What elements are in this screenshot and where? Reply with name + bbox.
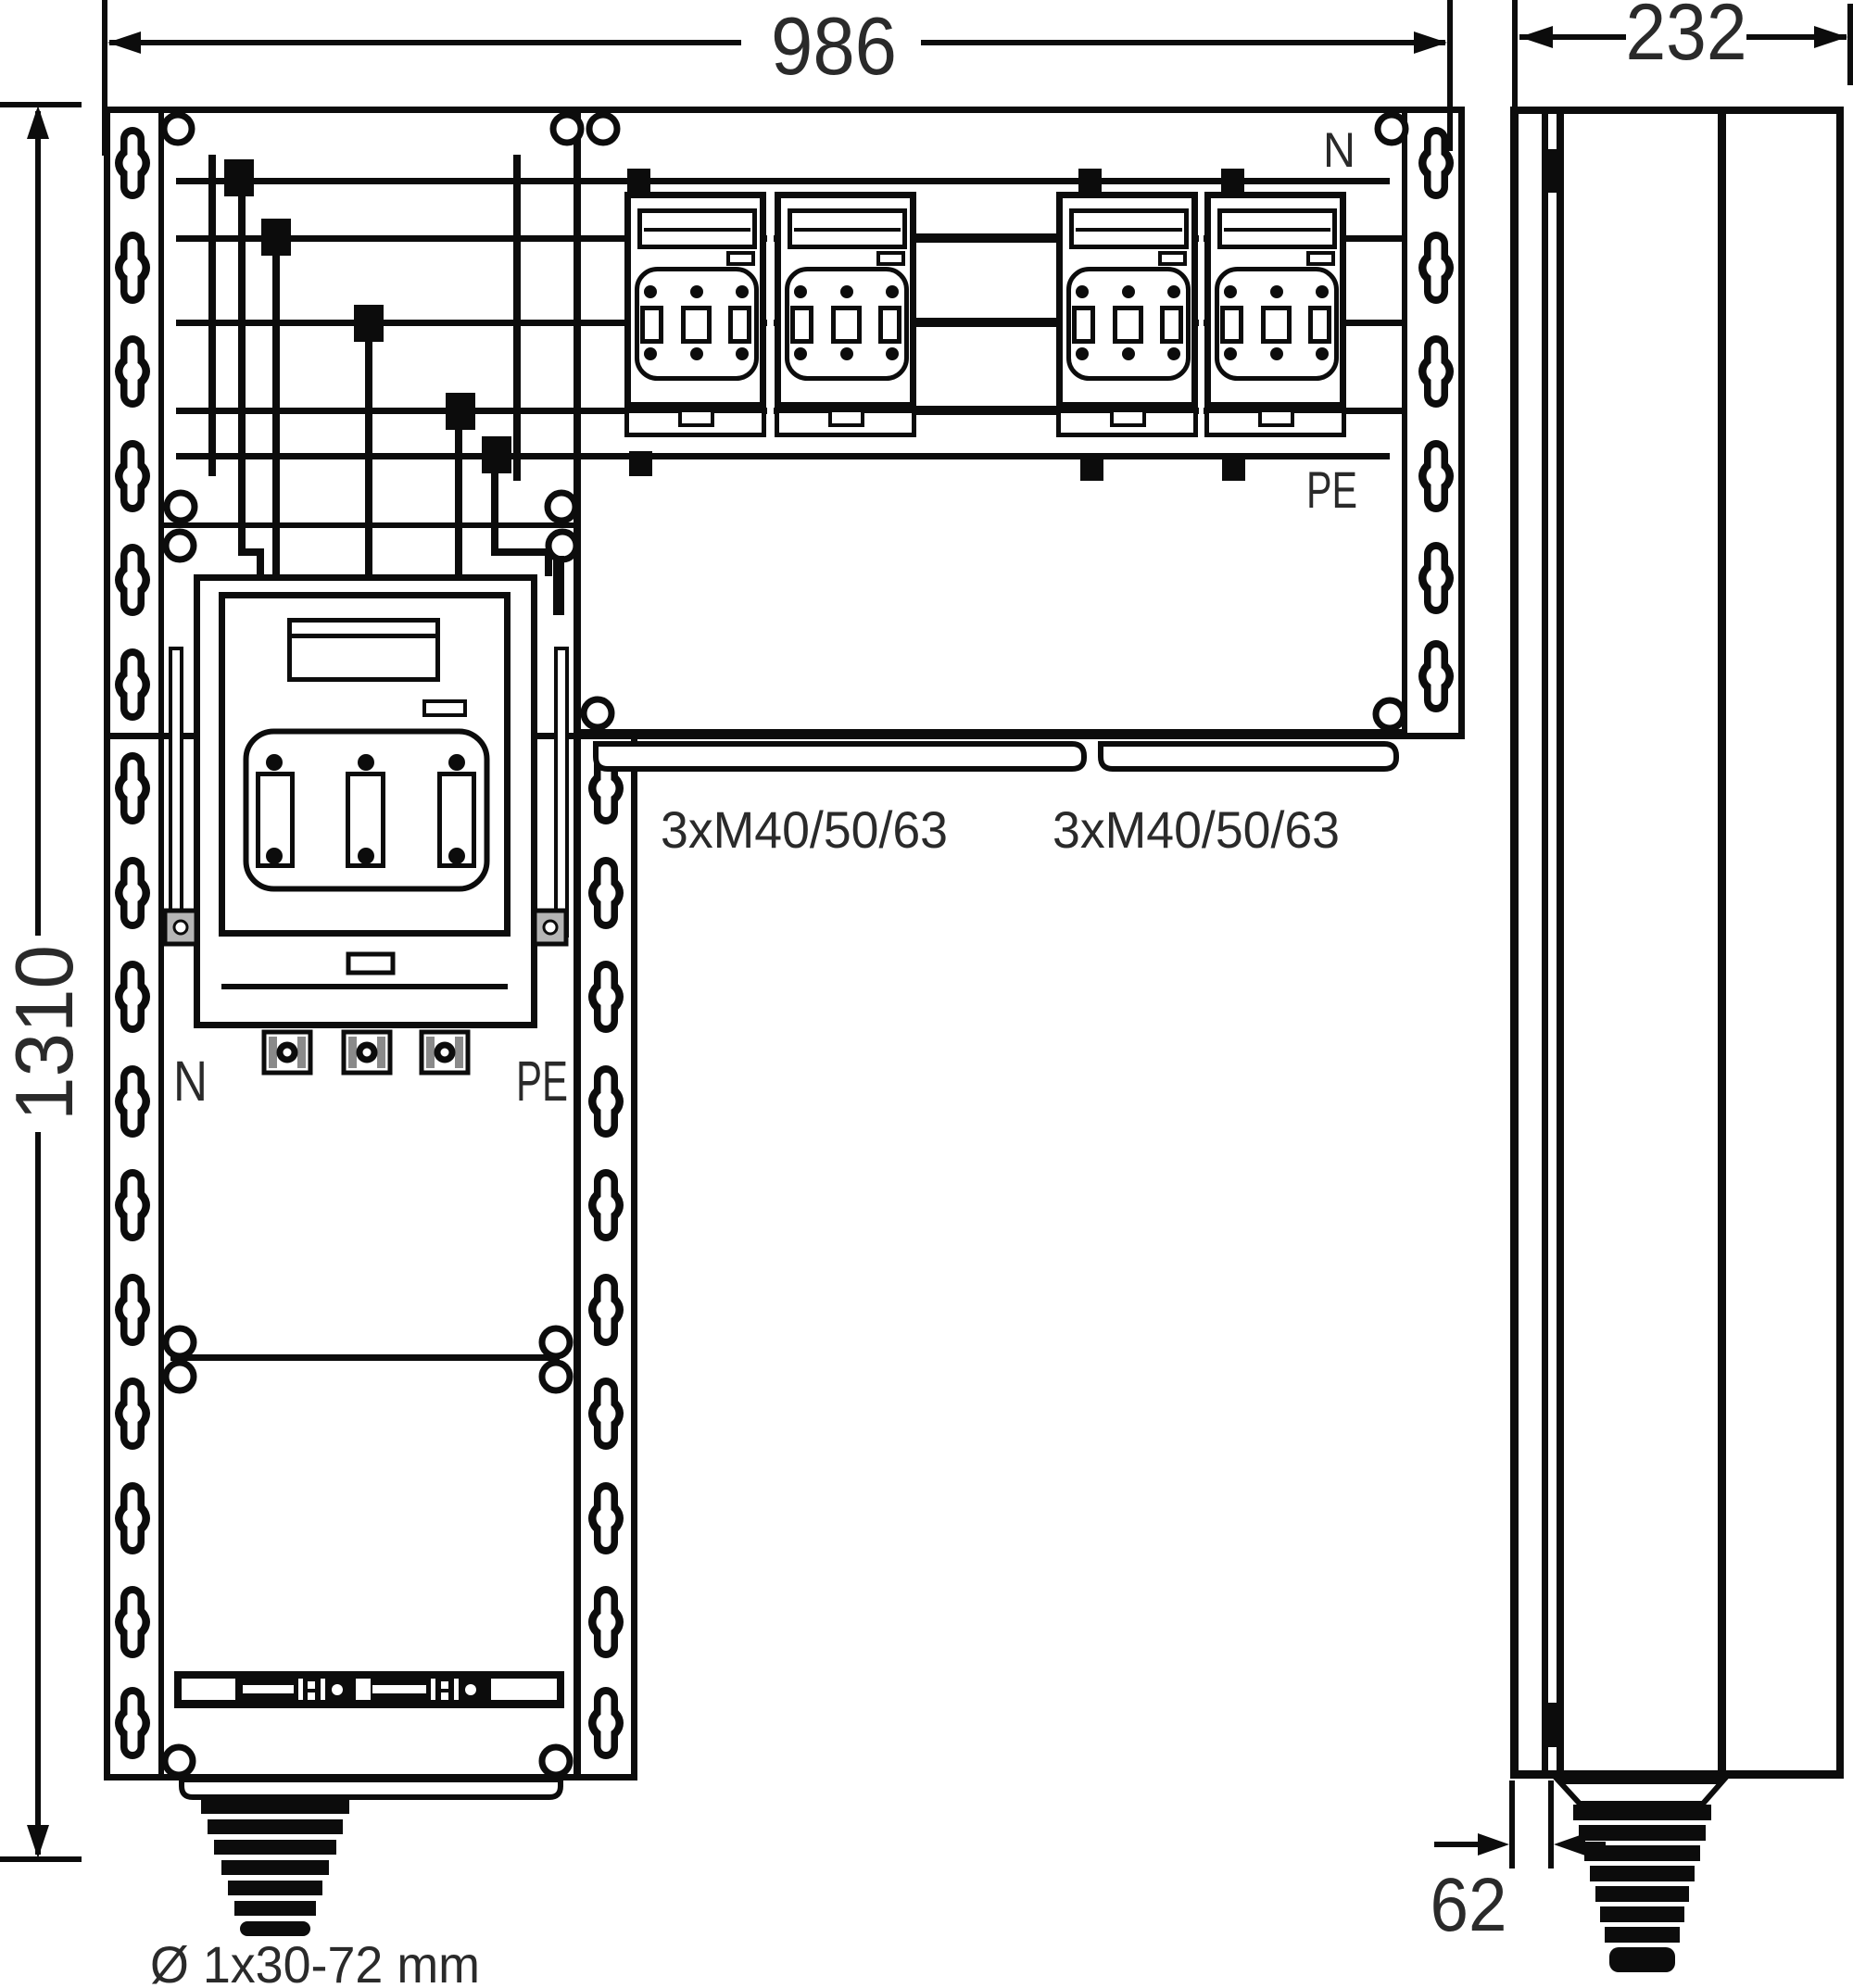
svg-text:3xM40/50/63: 3xM40/50/63 [1053,800,1340,859]
svg-text:N: N [1323,123,1355,178]
svg-text:986: 986 [771,0,897,92]
svg-text:62: 62 [1431,1863,1507,1947]
svg-text:3xM40/50/63: 3xM40/50/63 [661,800,948,859]
svg-text:232: 232 [1626,0,1747,77]
svg-text:1310: 1310 [0,945,90,1121]
svg-text:PE: PE [1306,460,1357,519]
svg-text:Ø 1x30-72 mm: Ø 1x30-72 mm [150,1935,480,1988]
svg-text:PE: PE [516,1050,568,1113]
svg-text:N: N [173,1050,208,1113]
